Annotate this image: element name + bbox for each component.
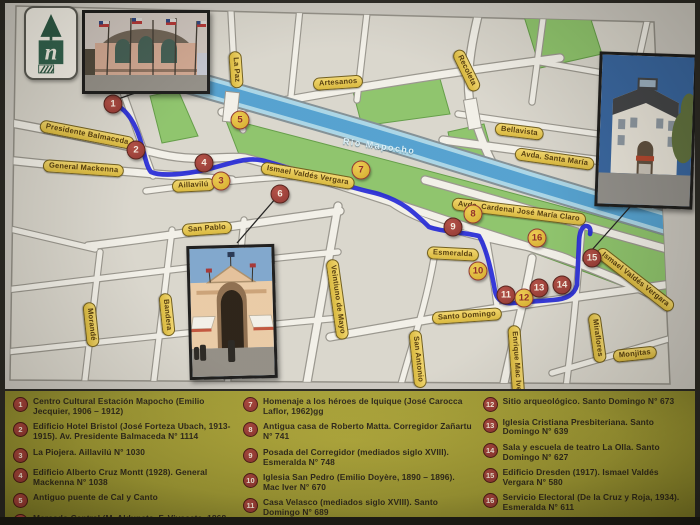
legend-item-text: Edificio Alberto Cruz Montt (1928). Gene… [33, 468, 233, 488]
street-label-bandera: Bandera [159, 293, 176, 337]
legend-item-number: 8 [243, 422, 258, 437]
legend-item-number: 4 [13, 468, 28, 483]
street-label-santo-domingo: Santo Domingo [432, 307, 503, 324]
estacion-mapocho-photo [82, 10, 210, 94]
street-label-esmeralda: Esmeralda [427, 246, 479, 261]
legend-item-12: 12Sitio arqueológico. Santo Domingo N° 6… [483, 397, 687, 412]
legend-item-number: 14 [483, 443, 498, 458]
legend-item-number: 13 [483, 418, 498, 433]
legend-item-5: 5Antiguo puente de Cal y Canto [13, 493, 233, 508]
legend-item-7: 7Homenaje a los héroes de Iquique (José … [243, 397, 473, 417]
edificio-dresden-photo [594, 51, 695, 209]
legend-item-number: 7 [243, 397, 258, 412]
legend-item-number: 11 [243, 498, 258, 513]
legend-item-text: Centro Cultural Estación Mapocho (Emilio… [33, 397, 233, 417]
street-label-recoleta: Recoleta [451, 48, 482, 94]
map-marker-7: 7 [352, 161, 371, 180]
map-marker-8: 8 [464, 205, 483, 224]
street-label-ismael-valdes-vergara: Ismael Valdés Vergara [594, 245, 677, 313]
map-marker-15: 15 [583, 249, 602, 268]
legend-column-2: 7Homenaje a los héroes de Iquique (José … [243, 397, 473, 517]
legend-item-text: Homenaje a los héroes de Iquique (José C… [263, 397, 473, 417]
legend-item-13: 13Iglesia Cristiana Presbiteriana. Santo… [483, 418, 687, 438]
legend-item-number: 3 [13, 448, 28, 463]
legend-item-number: 5 [13, 493, 28, 508]
legend-column-1: 1Centro Cultural Estación Mapocho (Emili… [13, 397, 233, 517]
legend-item-text: Iglesia Cristiana Presbiteriana. Santo D… [503, 418, 687, 438]
bottom-edge [0, 517, 700, 525]
heritage-logo-art: n [29, 11, 73, 75]
map: Presidente BalmacedaGeneral MackennaAill… [5, 3, 695, 389]
legend-column-3: 12Sitio arqueológico. Santo Domingo N° 6… [483, 397, 687, 517]
street-label-avda-santa-maria: Avda. Santa María [514, 147, 595, 170]
legend-item-number: 16 [483, 493, 498, 508]
legend-item-2: 2Edificio Hotel Bristol (José Forteza Ub… [13, 422, 233, 442]
legend-item-number: 10 [243, 473, 258, 488]
legend-item-text: Servicio Electoral (De la Cruz y Roja, 1… [503, 493, 687, 513]
street-label-san-antonio: San Antonio [409, 330, 428, 389]
legend-item-text: Edificio Hotel Bristol (José Forteza Uba… [33, 422, 233, 442]
map-marker-3: 3 [212, 172, 231, 191]
legend-item-text: Sitio arqueológico. Santo Domingo N° 673 [503, 397, 675, 407]
street-label-monjitas: Monjitas [612, 345, 657, 362]
map-marker-2: 2 [127, 141, 146, 160]
legend-item-text: Edificio Dresden (1917). Ismael Valdés V… [503, 468, 687, 488]
street-label-morande: Morandé [83, 302, 100, 348]
map-marker-13: 13 [530, 279, 549, 298]
map-marker-1: 1 [104, 95, 123, 114]
legend-item-number: 12 [483, 397, 498, 412]
legend-panel: 1Centro Cultural Estación Mapocho (Emili… [5, 391, 695, 517]
street-label-bellavista: Bellavista [494, 122, 544, 140]
legend-item-number: 9 [243, 448, 258, 463]
mercado-central-photo [186, 244, 277, 380]
map-marker-4: 4 [195, 154, 214, 173]
legend-item-number: 15 [483, 468, 498, 483]
map-marker-9: 9 [444, 218, 463, 237]
legend-item-text: Posada del Corregidor (mediados siglo XV… [263, 448, 473, 468]
legend-item-3: 3La Piojera. Aillavilú N° 1030 [13, 448, 233, 463]
street-label-presidente-balmaceda: Presidente Balmaceda [39, 119, 136, 150]
map-marker-6: 6 [271, 185, 290, 204]
legend-item-text: Iglesia San Pedro (Emilio Doyère, 1890 –… [263, 473, 473, 493]
street-label-enrique-mac-iver: Enrique Mac Iver [508, 325, 526, 389]
legend-item-11: 11Casa Velasco (mediados siglo XVIII). S… [243, 498, 473, 518]
map-marker-10: 10 [469, 262, 488, 281]
heritage-logo: n [24, 6, 78, 80]
legend-item-text: La Piojera. Aillavilú N° 1030 [33, 448, 145, 458]
street-label-aillavilu: Aillavilú [172, 178, 215, 193]
river-label: Río Mapocho [342, 136, 416, 156]
legend-item-14: 14Sala y escuela de teatro La Olla. Sant… [483, 443, 687, 463]
legend-item-text: Casa Velasco (mediados siglo XVIII). San… [263, 498, 473, 518]
street-label-san-pablo: San Pablo [182, 221, 233, 237]
street-label-artesanos: Artesanos [313, 74, 364, 90]
logo-letter: n [45, 40, 58, 65]
legend-item-8: 8Antigua casa de Roberto Matta. Corregid… [243, 422, 473, 442]
legend-item-text: Antiguo puente de Cal y Canto [33, 493, 158, 503]
legend-item-9: 9Posada del Corregidor (mediados siglo X… [243, 448, 473, 468]
legend-item-text: Antigua casa de Roberto Matta. Corregido… [263, 422, 473, 442]
street-label-miraflores: Miraflores [588, 312, 607, 363]
street-label-la-paz: La Paz [229, 51, 244, 89]
map-marker-16: 16 [528, 229, 547, 248]
map-marker-14: 14 [553, 276, 572, 295]
legend-item-number: 1 [13, 397, 28, 412]
map-marker-5: 5 [231, 111, 250, 130]
legend-item-15: 15Edificio Dresden (1917). Ismael Valdés… [483, 468, 687, 488]
legend-item-1: 1Centro Cultural Estación Mapocho (Emili… [13, 397, 233, 417]
legend-item-text: Sala y escuela de teatro La Olla. Santo … [503, 443, 687, 463]
street-label-veintiuno-de-mayo: Veintiuno de Mayo [326, 258, 350, 340]
legend-item-10: 10Iglesia San Pedro (Emilio Doyère, 1890… [243, 473, 473, 493]
map-marker-11: 11 [497, 286, 516, 305]
legend-item-16: 16Servicio Electoral (De la Cruz y Roja,… [483, 493, 687, 513]
legend-item-number: 2 [13, 422, 28, 437]
street-label-general-mackenna: General Mackenna [43, 159, 125, 177]
photo-frame: Presidente BalmacedaGeneral MackennaAill… [0, 0, 700, 525]
legend-item-4: 4Edificio Alberto Cruz Montt (1928). Gen… [13, 468, 233, 488]
